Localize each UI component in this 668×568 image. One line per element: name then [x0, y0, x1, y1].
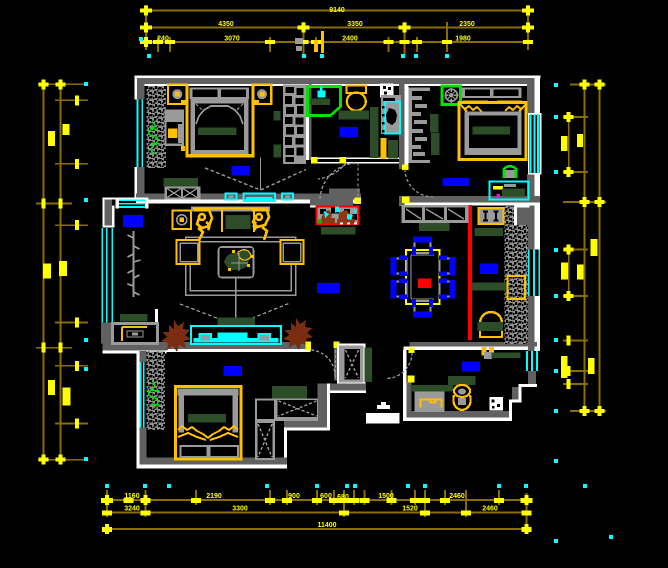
svg-text:2190: 2190 — [206, 493, 222, 500]
svg-text:900: 900 — [288, 493, 300, 500]
svg-text:2460: 2460 — [449, 493, 465, 500]
svg-text:3350: 3350 — [347, 21, 363, 28]
svg-text:1520: 1520 — [402, 506, 418, 513]
svg-text:9140: 9140 — [329, 7, 345, 14]
svg-text:680: 680 — [337, 494, 349, 501]
svg-text:1980: 1980 — [455, 36, 471, 43]
svg-text:4350: 4350 — [218, 21, 234, 28]
svg-text:600: 600 — [320, 493, 332, 500]
svg-text:3300: 3300 — [232, 506, 248, 513]
svg-text:3240: 3240 — [124, 506, 140, 513]
svg-text:2400: 2400 — [342, 36, 358, 43]
svg-text:2460: 2460 — [482, 506, 498, 513]
svg-text:2350: 2350 — [459, 21, 475, 28]
svg-text:3070: 3070 — [224, 36, 240, 43]
svg-text:11400: 11400 — [317, 522, 336, 529]
svg-text:240: 240 — [157, 36, 169, 43]
svg-text:1500: 1500 — [378, 493, 394, 500]
svg-text:1160: 1160 — [124, 493, 139, 500]
